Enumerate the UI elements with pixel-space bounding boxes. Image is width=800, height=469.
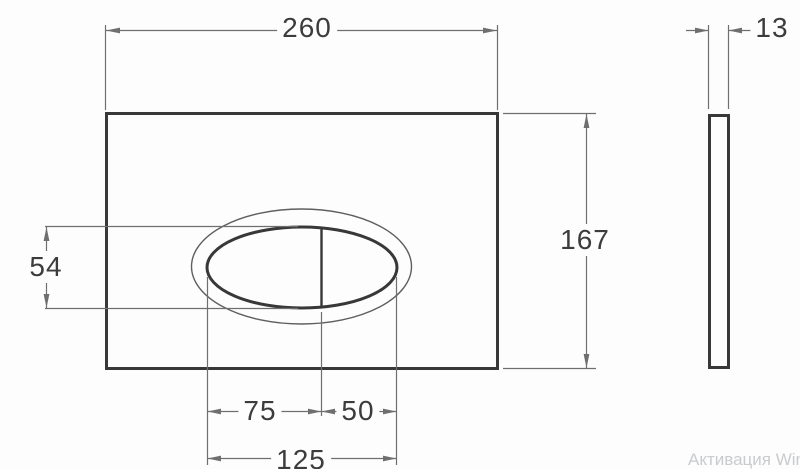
dim-label-plate-thickness: 13: [750, 12, 793, 44]
arrow-down: [584, 354, 590, 368]
arrow-right: [483, 28, 497, 34]
oval-inner-ring: [207, 227, 397, 308]
dim-label-oval-height: 54: [24, 251, 67, 283]
bottom-projection-lines: [208, 277, 397, 465]
arrow-down: [44, 294, 50, 308]
arrow-left-tip: [729, 28, 743, 34]
dim-label-right-button-width: 50: [336, 395, 379, 427]
arrow-left: [208, 409, 222, 415]
arrow-left: [208, 456, 222, 462]
arrow-up: [44, 227, 50, 241]
arrow-right: [383, 456, 397, 462]
side-view-plate-outline: [710, 116, 729, 368]
dim-label-left-button-width: 75: [238, 395, 281, 427]
dim-oval-height: [44, 227, 298, 309]
dim-label-oval-total-width: 125: [271, 444, 331, 469]
arrow-up: [584, 114, 590, 128]
dim-label-plate-width: 260: [277, 12, 337, 44]
dim-label-plate-height: 167: [555, 224, 615, 256]
arrow-right: [308, 409, 322, 415]
arrow-right-tip: [695, 28, 709, 34]
front-view-plate-outline: [107, 114, 498, 369]
windows-activation-watermark: Активация Windo: [688, 451, 800, 469]
arrow-right: [383, 409, 397, 415]
arrow-left: [322, 409, 336, 415]
dim-plate-thickness: [686, 25, 757, 109]
arrow-left: [106, 28, 120, 34]
front-plate-rect: [107, 114, 498, 369]
drawing-linework: [0, 0, 800, 469]
side-plate-rect: [710, 116, 729, 368]
technical-drawing-canvas: 260 13 167 54 75 50 125 Активация Windo: [0, 0, 800, 469]
